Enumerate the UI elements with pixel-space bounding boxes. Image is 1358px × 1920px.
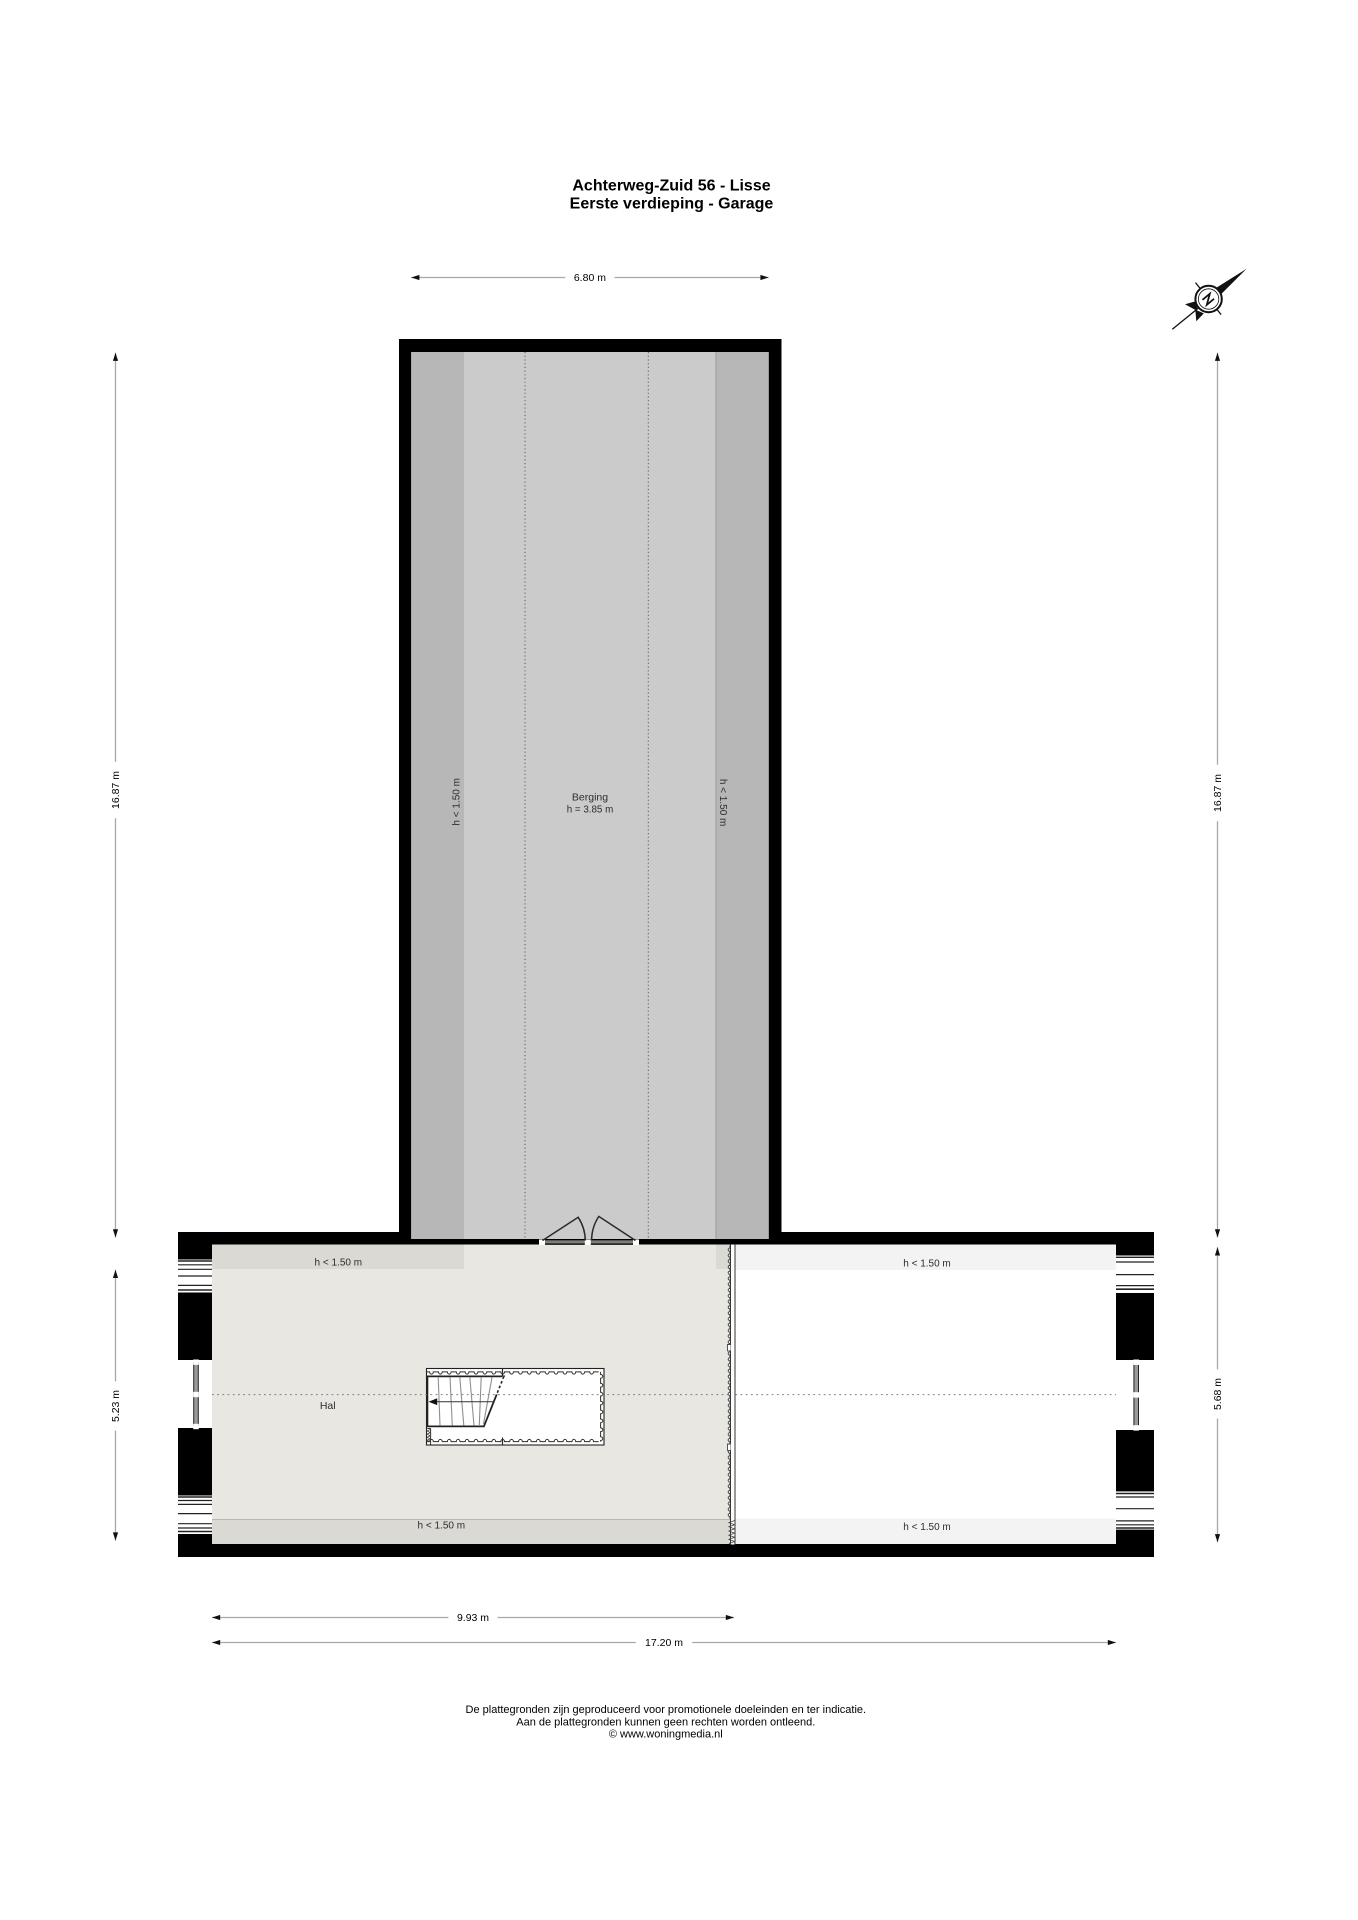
svg-text:17.20 m: 17.20 m — [645, 1637, 683, 1649]
svg-text:h < 1.50 m: h < 1.50 m — [315, 1257, 363, 1268]
svg-text:Aan de plattegronden kunnen ge: Aan de plattegronden kunnen geen rechten… — [516, 1716, 815, 1728]
svg-text:Hal: Hal — [320, 1400, 336, 1412]
svg-text:h < 1.50 m: h < 1.50 m — [903, 1522, 951, 1533]
svg-text:16.87 m: 16.87 m — [110, 771, 122, 809]
svg-text:6.80 m: 6.80 m — [574, 272, 606, 284]
svg-text:© www.woningmedia.nl: © www.woningmedia.nl — [609, 1729, 723, 1741]
svg-text:9.93 m: 9.93 m — [457, 1612, 489, 1624]
svg-text:16.87 m: 16.87 m — [1212, 774, 1224, 812]
svg-text:h < 1.50 m: h < 1.50 m — [717, 779, 728, 827]
svg-text:h < 1.50 m: h < 1.50 m — [418, 1521, 466, 1532]
svg-text:h = 3.85 m: h = 3.85 m — [567, 805, 614, 816]
svg-text:5.23 m: 5.23 m — [110, 1390, 122, 1422]
svg-text:5.68 m: 5.68 m — [1212, 1378, 1224, 1410]
svg-text:De plattegronden zijn geproduc: De plattegronden zijn geproduceerd voor … — [466, 1704, 867, 1716]
svg-text:h < 1.50 m: h < 1.50 m — [903, 1259, 951, 1270]
svg-text:h < 1.50 m: h < 1.50 m — [452, 778, 463, 826]
svg-text:Berging: Berging — [572, 792, 608, 804]
svg-text:Achterweg-Zuid 56 - Lisse: Achterweg-Zuid 56 - Lisse — [572, 178, 770, 195]
svg-text:Eerste verdieping - Garage: Eerste verdieping - Garage — [570, 196, 774, 213]
